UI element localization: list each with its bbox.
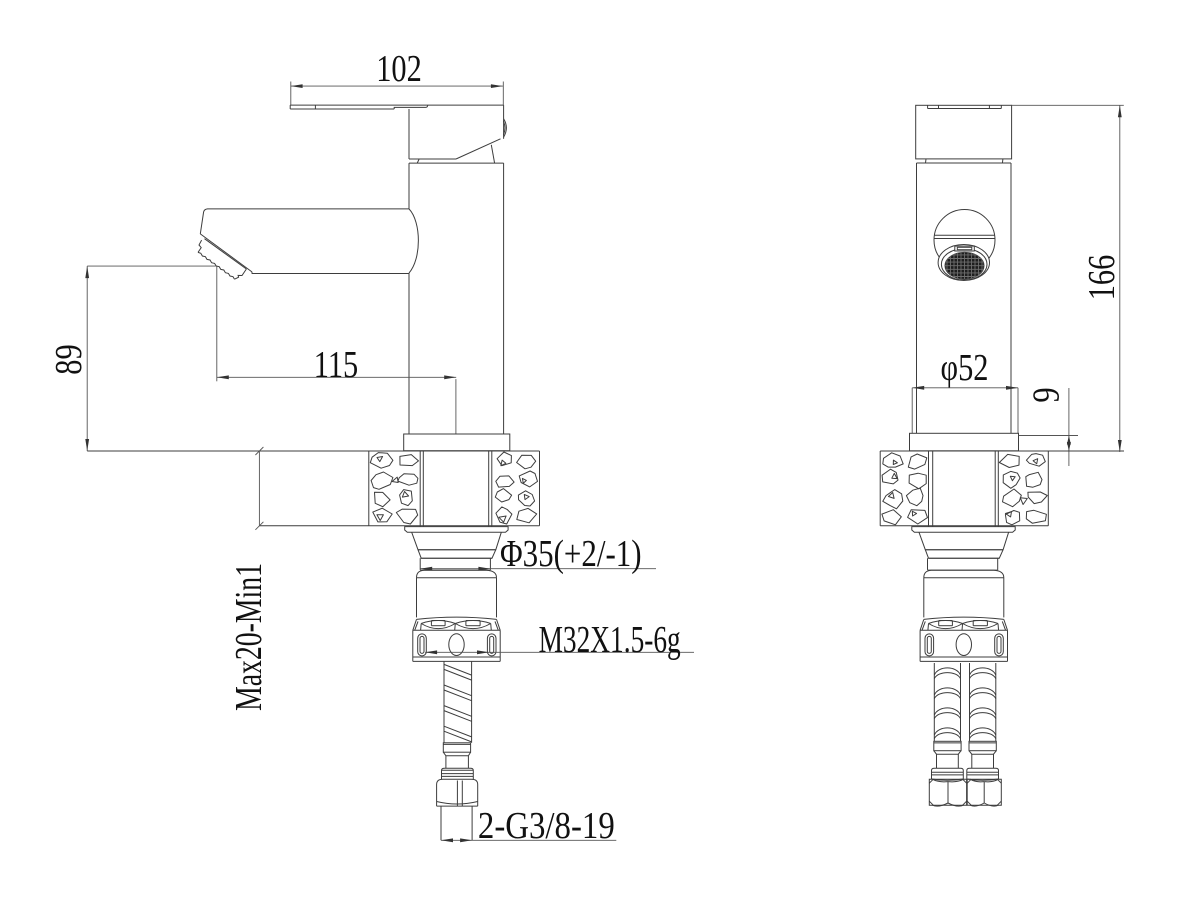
svg-text:89: 89 [48, 344, 90, 374]
svg-text:M32X1.5-6g: M32X1.5-6g [539, 619, 681, 661]
svg-text:φ52: φ52 [941, 347, 989, 389]
svg-text:2-G3/8-19: 2-G3/8-19 [478, 804, 615, 847]
svg-text:102: 102 [376, 48, 422, 90]
svg-text:9: 9 [1025, 387, 1067, 402]
svg-text:Φ35(+2/-1): Φ35(+2/-1) [500, 533, 642, 575]
svg-text:166: 166 [1081, 255, 1123, 301]
svg-text:115: 115 [314, 344, 358, 386]
svg-text:Max20-Min1: Max20-Min1 [228, 563, 270, 711]
